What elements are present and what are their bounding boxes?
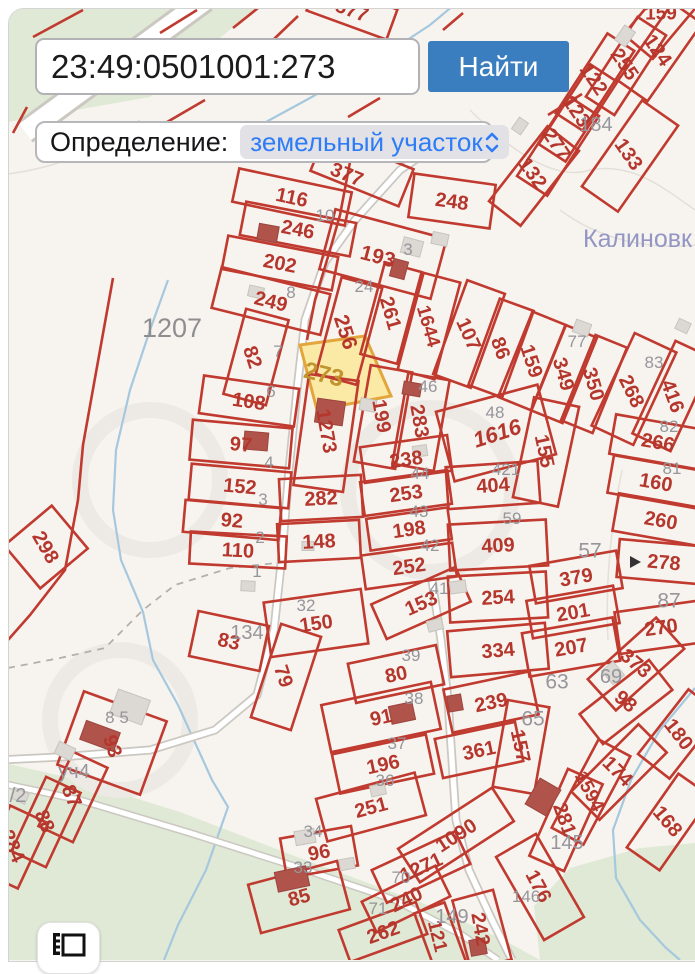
- address-number: 32: [297, 596, 316, 615]
- address-number: 184: [579, 114, 612, 136]
- address-number: 42: [421, 536, 440, 555]
- address-number: 2: [255, 528, 264, 547]
- address-number: 149: [435, 906, 468, 928]
- find-button[interactable]: Найти: [428, 41, 569, 92]
- address-number: 145: [550, 832, 583, 854]
- building: [339, 857, 356, 870]
- address-number: 87: [657, 589, 680, 612]
- address-number: 48: [486, 403, 505, 422]
- address-number: 63: [545, 670, 568, 693]
- building: [431, 231, 449, 246]
- parcel-number: 152: [222, 475, 257, 500]
- address-number: 3: [403, 240, 412, 259]
- building: [257, 223, 279, 242]
- parcel-number: 270: [643, 615, 679, 641]
- address-number: 39: [402, 646, 421, 665]
- address-number: 46: [419, 377, 438, 396]
- address-number: 71: [369, 899, 388, 918]
- address-number: /2: [10, 785, 27, 807]
- address-number: 134: [230, 622, 263, 644]
- parcel-number: 252: [391, 554, 427, 580]
- parcel-number: 254: [481, 586, 516, 610]
- address-number: 57: [578, 539, 601, 562]
- parcel-number: 110: [221, 539, 254, 563]
- ruler-icon: [50, 931, 88, 961]
- address-number: 421: [492, 460, 520, 479]
- address-number: 82: [660, 417, 679, 436]
- address-number: 37: [388, 734, 407, 753]
- building: [447, 694, 464, 712]
- address-number: 6: [266, 382, 275, 401]
- building: [241, 581, 256, 592]
- object-type-value: земельный участок: [250, 127, 483, 158]
- cadastral-number-input[interactable]: [35, 38, 420, 95]
- quarter-label: 1207: [142, 313, 202, 343]
- parcel-number: 248: [434, 189, 470, 215]
- parcel-number: 108: [231, 389, 267, 415]
- address-number: 34: [304, 822, 323, 841]
- parcel-number: 92: [220, 509, 244, 533]
- address-number: 69: [600, 666, 622, 688]
- measure-button[interactable]: [37, 922, 100, 974]
- parcel-number: 91: [368, 705, 394, 731]
- address-number: 83: [645, 353, 664, 372]
- address-number: 81: [663, 459, 682, 478]
- filter-label: Определение:: [50, 127, 228, 158]
- parcel-number: 148: [302, 530, 336, 554]
- address-number: 8 5: [105, 708, 129, 727]
- object-type-select[interactable]: земельный участок: [240, 125, 509, 159]
- select-chevrons-icon: [483, 129, 501, 156]
- address-number: уч4: [58, 761, 90, 783]
- address-number: 59: [503, 509, 522, 528]
- address-number: 146: [512, 887, 540, 906]
- parcel-number: 409: [481, 534, 515, 558]
- address-number: 44: [411, 464, 430, 483]
- address-number: 65: [521, 707, 544, 730]
- address-number: 38: [405, 689, 424, 708]
- building: [449, 580, 467, 594]
- address-number: 8: [286, 283, 295, 302]
- address-number: 4: [264, 453, 273, 472]
- address-number: 1: [252, 562, 261, 581]
- parcel-number: 159: [645, 8, 677, 25]
- parcel-number: 334: [481, 639, 517, 664]
- filter-bar: Определение: земельный участок: [35, 121, 493, 163]
- address-number: 36: [376, 771, 395, 790]
- parcel-number: 97: [229, 433, 253, 457]
- address-number: 43: [410, 502, 429, 521]
- place-label: Калиновк: [583, 225, 693, 253]
- address-number: 33: [294, 858, 313, 877]
- address-number: 10: [316, 206, 335, 225]
- parcel-number: 282: [304, 487, 338, 511]
- parcel-number: 278: [646, 551, 681, 576]
- address-number: 70: [392, 868, 411, 887]
- address-number: 24: [355, 277, 374, 296]
- address-number: 7: [273, 342, 282, 361]
- address-number: 3: [258, 490, 267, 509]
- address-number: 41: [430, 579, 449, 598]
- address-number: 77: [568, 332, 587, 351]
- parcel-number: 80: [383, 662, 409, 688]
